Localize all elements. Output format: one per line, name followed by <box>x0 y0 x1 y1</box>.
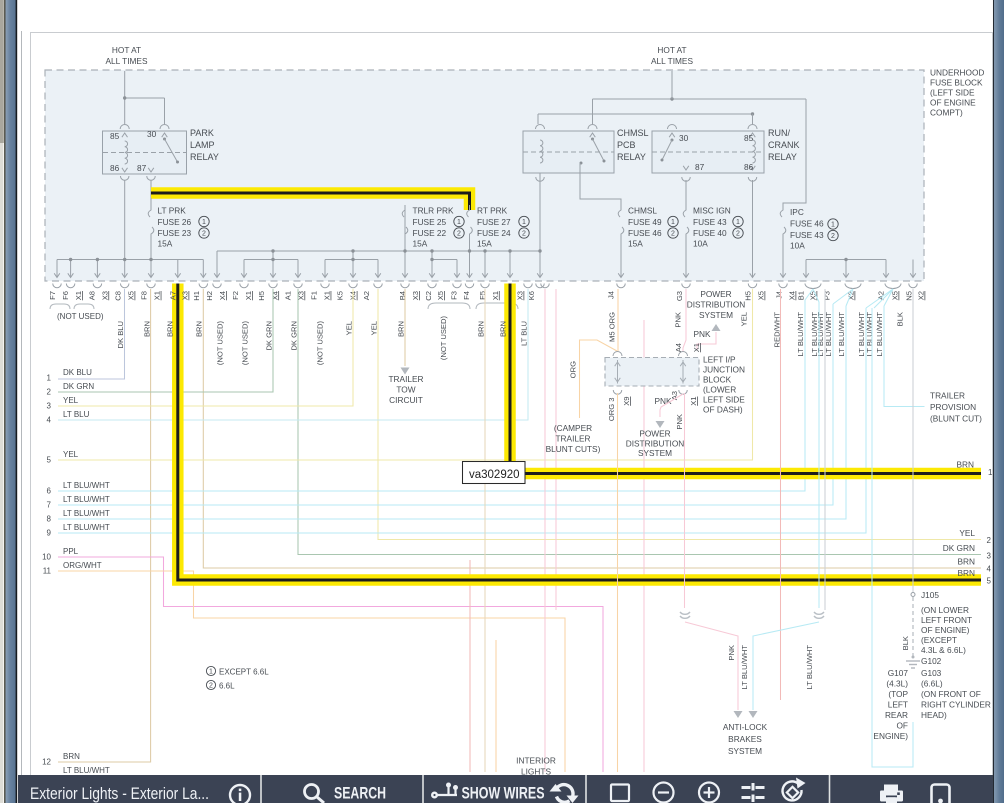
svg-text:LT PRK: LT PRK <box>158 206 187 216</box>
svg-text:(TOP: (TOP <box>888 689 908 699</box>
svg-text:(LOWER: (LOWER <box>703 385 736 395</box>
svg-text:ENGINE): ENGINE) <box>873 731 908 741</box>
svg-text:1: 1 <box>522 219 526 226</box>
svg-text:RT PRK: RT PRK <box>477 206 508 216</box>
svg-text:LT BLU/WHT: LT BLU/WHT <box>63 495 110 504</box>
svg-text:86: 86 <box>744 162 754 172</box>
svg-text:2: 2 <box>457 231 461 238</box>
svg-text:(4.3L): (4.3L) <box>886 679 908 689</box>
svg-text:FUSE 25: FUSE 25 <box>413 217 447 227</box>
svg-text:PNK: PNK <box>674 312 683 328</box>
svg-text:J105: J105 <box>921 590 939 600</box>
svg-text:LT BLU: LT BLU <box>520 321 529 346</box>
svg-text:FUSE BLOCK: FUSE BLOCK <box>930 78 983 88</box>
svg-text:DK BLU: DK BLU <box>116 321 125 348</box>
svg-text:FUSE 43: FUSE 43 <box>790 230 824 240</box>
svg-text:BRN: BRN <box>957 568 975 578</box>
svg-text:J4: J4 <box>775 291 784 299</box>
svg-text:(NOT USED): (NOT USED) <box>439 316 448 361</box>
svg-text:4.3L & 6.6L): 4.3L & 6.6L) <box>921 645 966 655</box>
svg-text:BRN: BRN <box>166 321 175 337</box>
svg-text:1: 1 <box>209 669 213 676</box>
svg-text:H2: H2 <box>205 291 214 301</box>
svg-text:FUSE 40: FUSE 40 <box>693 228 727 238</box>
svg-text:H5: H5 <box>257 291 266 301</box>
svg-text:OF DASH): OF DASH) <box>703 405 743 415</box>
svg-text:B4: B4 <box>398 291 407 300</box>
svg-text:FUSE 26: FUSE 26 <box>158 217 192 227</box>
svg-text:X5: X5 <box>127 291 136 300</box>
svg-text:F4: F4 <box>462 291 471 300</box>
svg-text:A1: A1 <box>283 291 292 300</box>
svg-text:X4: X4 <box>218 291 227 300</box>
svg-text:P3: P3 <box>823 291 832 300</box>
svg-text:15A: 15A <box>158 239 173 249</box>
svg-text:X3: X3 <box>411 291 420 300</box>
svg-text:LAMP: LAMP <box>190 140 215 150</box>
svg-text:OF: OF <box>896 721 908 731</box>
svg-text:X3: X3 <box>100 291 109 300</box>
svg-text:(NOT USED): (NOT USED) <box>57 312 104 321</box>
svg-text:TRAILER: TRAILER <box>555 434 590 444</box>
svg-text:30: 30 <box>679 133 689 143</box>
svg-text:BRN: BRN <box>956 460 974 470</box>
svg-text:G3: G3 <box>675 291 684 301</box>
svg-text:A7: A7 <box>169 291 178 300</box>
svg-text:LEFT: LEFT <box>888 700 908 710</box>
svg-text:F6: F6 <box>61 291 70 300</box>
svg-text:BLUNT CUTS): BLUNT CUTS) <box>546 444 601 454</box>
svg-text:LT BLU/WHT: LT BLU/WHT <box>63 766 110 775</box>
svg-text:BLK: BLK <box>896 312 905 326</box>
svg-text:DK BLU: DK BLU <box>63 368 92 377</box>
svg-text:87: 87 <box>137 163 147 173</box>
svg-text:FUSE 27: FUSE 27 <box>477 217 511 227</box>
svg-text:CRANK: CRANK <box>768 140 800 150</box>
svg-text:SYSTEM: SYSTEM <box>728 746 762 756</box>
svg-text:X1: X1 <box>244 291 253 300</box>
svg-text:(ON LOWER: (ON LOWER <box>921 605 969 615</box>
svg-text:G102: G102 <box>921 656 942 666</box>
svg-text:LT BLU/WHT: LT BLU/WHT <box>740 645 749 690</box>
svg-text:86: 86 <box>110 163 120 173</box>
svg-text:FUSE 46: FUSE 46 <box>628 228 662 238</box>
svg-text:INTERIOR: INTERIOR <box>516 756 556 766</box>
svg-text:ALL TIMES: ALL TIMES <box>106 56 148 66</box>
svg-text:9: 9 <box>47 529 52 538</box>
svg-text:1: 1 <box>831 222 835 229</box>
svg-text:X9: X9 <box>622 397 631 406</box>
svg-text:LT BLU/WHT: LT BLU/WHT <box>63 481 110 490</box>
svg-text:ORG/WHT: ORG/WHT <box>63 561 102 570</box>
svg-text:BRN: BRN <box>477 321 486 337</box>
svg-text:10A: 10A <box>790 241 805 251</box>
svg-text:H1: H1 <box>192 291 201 301</box>
svg-text:(NOT USED): (NOT USED) <box>241 321 250 366</box>
svg-text:2: 2 <box>522 231 526 238</box>
svg-text:YEL: YEL <box>63 396 79 405</box>
svg-text:5: 5 <box>47 456 52 465</box>
svg-text:6.6L: 6.6L <box>219 682 235 691</box>
svg-text:X4: X4 <box>788 291 797 300</box>
svg-text:HOT AT: HOT AT <box>657 45 686 55</box>
svg-text:PNK: PNK <box>693 329 711 339</box>
svg-text:LT BLU/WHT: LT BLU/WHT <box>805 645 814 690</box>
svg-text:LEFT I/P: LEFT I/P <box>703 355 736 365</box>
svg-text:A2: A2 <box>362 291 371 300</box>
svg-text:X1: X1 <box>323 291 332 300</box>
svg-text:85: 85 <box>110 131 120 141</box>
svg-text:(ON FRONT OF: (ON FRONT OF <box>921 689 981 699</box>
svg-text:1: 1 <box>671 219 675 226</box>
svg-text:(6.6L): (6.6L) <box>921 679 943 689</box>
svg-text:HEAD): HEAD) <box>921 710 947 720</box>
svg-text:DK GRN: DK GRN <box>943 543 975 553</box>
svg-text:2: 2 <box>671 231 675 238</box>
svg-text:6: 6 <box>47 487 52 496</box>
svg-text:BLK: BLK <box>901 636 910 650</box>
svg-text:10: 10 <box>42 553 51 562</box>
svg-text:EXCEPT 6.6L: EXCEPT 6.6L <box>219 668 269 677</box>
svg-text:ORG 3: ORG 3 <box>607 398 616 422</box>
svg-text:RELAY: RELAY <box>190 152 219 162</box>
svg-text:CHMSL: CHMSL <box>628 206 657 216</box>
svg-text:SYSTEM: SYSTEM <box>699 310 733 320</box>
svg-text:30: 30 <box>147 129 157 139</box>
svg-text:LT BLU: LT BLU <box>63 410 90 419</box>
svg-text:SEARCH: SEARCH <box>334 785 386 803</box>
svg-text:A8: A8 <box>87 291 96 300</box>
svg-text:K5: K5 <box>336 291 345 300</box>
svg-text:12: 12 <box>42 758 51 767</box>
svg-text:FUSE 22: FUSE 22 <box>413 228 447 238</box>
svg-text:UNDERHOOD: UNDERHOOD <box>930 68 984 78</box>
svg-text:2: 2 <box>831 233 835 240</box>
svg-text:X3: X3 <box>516 291 525 300</box>
svg-text:RUN/: RUN/ <box>768 128 790 138</box>
svg-text:Exterior Lights - Exterior La.: Exterior Lights - Exterior La... <box>30 785 209 803</box>
svg-text:OF ENGINE: OF ENGINE <box>930 98 976 108</box>
svg-text:LEFT SIDE: LEFT SIDE <box>703 395 745 405</box>
svg-text:JUNCTION: JUNCTION <box>703 365 745 375</box>
svg-text:BRN: BRN <box>63 752 80 761</box>
svg-text:11: 11 <box>43 567 52 576</box>
svg-text:POWER: POWER <box>639 429 670 439</box>
svg-text:PNK: PNK <box>654 396 672 406</box>
svg-text:ALL TIMES: ALL TIMES <box>651 56 693 66</box>
svg-text:8: 8 <box>47 515 52 524</box>
svg-text:1: 1 <box>457 219 461 226</box>
svg-text:X5: X5 <box>757 291 766 300</box>
svg-text:X5: X5 <box>891 291 900 300</box>
svg-text:SYSTEM: SYSTEM <box>638 448 672 458</box>
svg-text:CHMSL: CHMSL <box>617 128 649 138</box>
svg-text:FUSE 23: FUSE 23 <box>158 228 192 238</box>
svg-text:PARK: PARK <box>190 128 214 138</box>
svg-text:7: 7 <box>47 501 52 510</box>
svg-text:FUSE 49: FUSE 49 <box>628 217 662 227</box>
svg-text:2: 2 <box>736 231 740 238</box>
svg-text:POWER: POWER <box>700 289 731 299</box>
svg-text:F8: F8 <box>140 291 149 300</box>
svg-text:BRN: BRN <box>499 321 508 337</box>
svg-text:(EXCEPT: (EXCEPT <box>921 635 957 645</box>
svg-text:1: 1 <box>736 219 740 226</box>
svg-text:X1: X1 <box>74 291 83 300</box>
svg-text:X5: X5 <box>436 291 445 300</box>
svg-text:YEL: YEL <box>370 321 379 335</box>
svg-text:ORG: ORG <box>569 361 578 378</box>
svg-text:87: 87 <box>695 162 705 172</box>
svg-text:J4: J4 <box>607 291 616 299</box>
svg-text:F3: F3 <box>450 291 459 300</box>
svg-text:MISC IGN: MISC IGN <box>693 206 731 216</box>
svg-text:(BLUNT CUT): (BLUNT CUT) <box>930 414 982 424</box>
svg-text:4: 4 <box>987 565 992 574</box>
svg-text:TOW: TOW <box>396 385 415 395</box>
svg-text:LT BLU/WHT: LT BLU/WHT <box>796 312 805 357</box>
svg-text:G107: G107 <box>888 668 909 678</box>
svg-text:15A: 15A <box>413 239 428 249</box>
svg-text:(NOT USED): (NOT USED) <box>316 321 325 366</box>
svg-text:C8: C8 <box>113 291 122 301</box>
svg-text:(LEFT SIDE: (LEFT SIDE <box>930 88 975 98</box>
svg-text:DK GRN: DK GRN <box>265 321 274 351</box>
svg-text:REAR: REAR <box>885 710 908 720</box>
svg-text:F1: F1 <box>310 291 319 300</box>
svg-text:ANTI-LOCK: ANTI-LOCK <box>723 722 768 732</box>
svg-text:F5: F5 <box>478 291 487 300</box>
svg-text:X1: X1 <box>689 397 698 406</box>
svg-text:(NOT USED): (NOT USED) <box>216 321 225 366</box>
svg-text:N5: N5 <box>905 291 914 301</box>
svg-text:PCB: PCB <box>617 140 636 150</box>
svg-text:10A: 10A <box>693 239 708 249</box>
svg-text:X2: X2 <box>917 291 926 300</box>
svg-text:C2: C2 <box>424 291 433 301</box>
svg-text:3: 3 <box>987 552 992 561</box>
svg-text:M5 ORG: M5 ORG <box>608 312 617 342</box>
svg-text:FUSE 43: FUSE 43 <box>693 217 727 227</box>
svg-text:LEFT FRONT: LEFT FRONT <box>921 615 972 625</box>
svg-text:2: 2 <box>202 231 206 238</box>
svg-text:OF ENGINE): OF ENGINE) <box>921 625 970 635</box>
svg-text:BRN: BRN <box>957 557 975 567</box>
svg-text:IPC: IPC <box>790 207 804 217</box>
svg-text:LT BLU/WHT: LT BLU/WHT <box>875 312 884 357</box>
svg-text:SHOW WIRES: SHOW WIRES <box>462 785 545 803</box>
svg-text:(CAMPER: (CAMPER <box>554 423 592 433</box>
svg-text:G103: G103 <box>921 668 942 678</box>
svg-text:CIRCUIT: CIRCUIT <box>389 395 423 405</box>
svg-text:X1: X1 <box>692 343 701 352</box>
svg-text:85: 85 <box>744 133 754 143</box>
svg-text:PPL: PPL <box>63 547 79 556</box>
svg-text:X3: X3 <box>181 291 190 300</box>
svg-text:PNK: PNK <box>675 414 684 430</box>
svg-text:va302920: va302920 <box>469 469 520 481</box>
svg-text:TRLR PRK: TRLR PRK <box>413 206 454 216</box>
svg-text:A4: A4 <box>674 343 683 352</box>
svg-text:BRN: BRN <box>195 321 204 337</box>
svg-text:1: 1 <box>47 374 52 383</box>
svg-text:COMPT): COMPT) <box>930 108 963 118</box>
svg-text:X1: X1 <box>153 291 162 300</box>
svg-text:DK GRN: DK GRN <box>290 321 299 351</box>
svg-text:1: 1 <box>988 468 993 477</box>
svg-text:15A: 15A <box>477 239 492 249</box>
svg-text:FUSE 46: FUSE 46 <box>790 219 824 229</box>
svg-text:LT BLU/WHT: LT BLU/WHT <box>63 509 110 518</box>
svg-text:DISTRIBUTION: DISTRIBUTION <box>687 300 746 310</box>
svg-text:LT BLU/WHT: LT BLU/WHT <box>837 312 846 357</box>
svg-text:YEL: YEL <box>345 321 354 335</box>
svg-text:RELAY: RELAY <box>768 152 797 162</box>
svg-text:2: 2 <box>209 683 213 690</box>
svg-text:DK GRN: DK GRN <box>63 382 94 391</box>
svg-text:2: 2 <box>987 536 992 545</box>
svg-text:B1: B1 <box>797 291 806 300</box>
svg-text:F2: F2 <box>231 291 240 300</box>
svg-text:TRAILER: TRAILER <box>388 374 423 384</box>
svg-text:5: 5 <box>987 577 992 586</box>
svg-text:F7: F7 <box>48 291 57 300</box>
svg-text:15A: 15A <box>628 239 643 249</box>
svg-text:DISTRIBUTION: DISTRIBUTION <box>626 439 685 449</box>
svg-text:TRAILER: TRAILER <box>930 391 965 401</box>
svg-text:RELAY: RELAY <box>617 152 646 162</box>
svg-text:2: 2 <box>47 388 52 397</box>
svg-text:FUSE 24: FUSE 24 <box>477 228 511 238</box>
svg-text:X1: X1 <box>491 291 500 300</box>
svg-text:PNK: PNK <box>727 645 736 661</box>
svg-text:BRAKES: BRAKES <box>728 734 762 744</box>
svg-text:RIGHT CYLINDER: RIGHT CYLINDER <box>921 700 991 710</box>
svg-text:YEL: YEL <box>959 528 975 538</box>
svg-text:1: 1 <box>202 219 206 226</box>
svg-text:YEL: YEL <box>740 312 749 326</box>
svg-text:BLOCK: BLOCK <box>703 375 732 385</box>
svg-text:3: 3 <box>47 402 52 411</box>
svg-text:4: 4 <box>47 416 52 425</box>
svg-text:LT BLU/WHT: LT BLU/WHT <box>63 523 110 532</box>
svg-text:PROVISION: PROVISION <box>930 402 976 412</box>
svg-text:YEL: YEL <box>63 450 79 459</box>
svg-text:X4: X4 <box>270 291 279 300</box>
svg-text:HOT AT: HOT AT <box>112 45 141 55</box>
svg-text:BRN: BRN <box>397 321 406 337</box>
